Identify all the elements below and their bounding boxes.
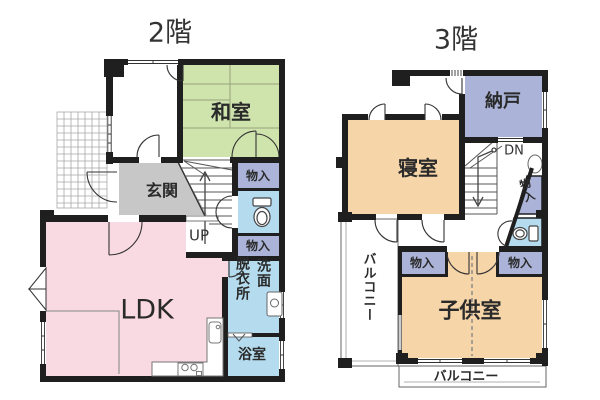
room-label-ldk: LDK	[120, 297, 174, 324]
washbasin-icon	[267, 292, 282, 316]
opening-f2	[186, 216, 218, 221]
room-label-monoire-right-f3: 物入	[508, 257, 532, 269]
stairs-down	[465, 140, 502, 214]
room-label-shinshitsu: 寝室	[398, 158, 438, 178]
floorplan-page: 2階 3階 和室 玄関 物入 物入 LDK UP 洗面 脱衣所 浴室 納戸 寝室…	[0, 0, 600, 400]
floor3-title: 3階	[434, 27, 478, 54]
room-label-monoire-mid-f2: 物入	[246, 240, 270, 252]
room-label-monoire-top-f2: 物入	[246, 170, 270, 182]
room-label-kodomoshitsu: 子供室	[439, 301, 502, 322]
room-label-nando: 納戸	[485, 93, 521, 111]
french-door	[29, 267, 46, 311]
room-label-datsuijo: 脱衣所	[235, 256, 249, 301]
floorplan-graphics	[0, 0, 600, 400]
room-label-genkan: 玄関	[146, 183, 178, 199]
toilet-icon-f2	[253, 198, 271, 227]
room-label-senmen: 洗面	[256, 258, 270, 288]
room-label-monoire-left-f3: 物入	[410, 257, 434, 269]
room-label-washitsu: 和室	[211, 102, 251, 122]
stairs-up-label: UP	[189, 229, 209, 244]
balcony-bottom-label: バルコニー	[434, 371, 499, 384]
floor2-title: 2階	[148, 20, 192, 47]
balcony-left-label: バルコニー	[362, 252, 375, 322]
stairs-dn-label: DN	[504, 145, 524, 158]
room-label-yokushitsu: 浴室	[238, 348, 266, 362]
roof-hatch-area	[57, 112, 107, 208]
floor3-plan	[336, 70, 548, 387]
